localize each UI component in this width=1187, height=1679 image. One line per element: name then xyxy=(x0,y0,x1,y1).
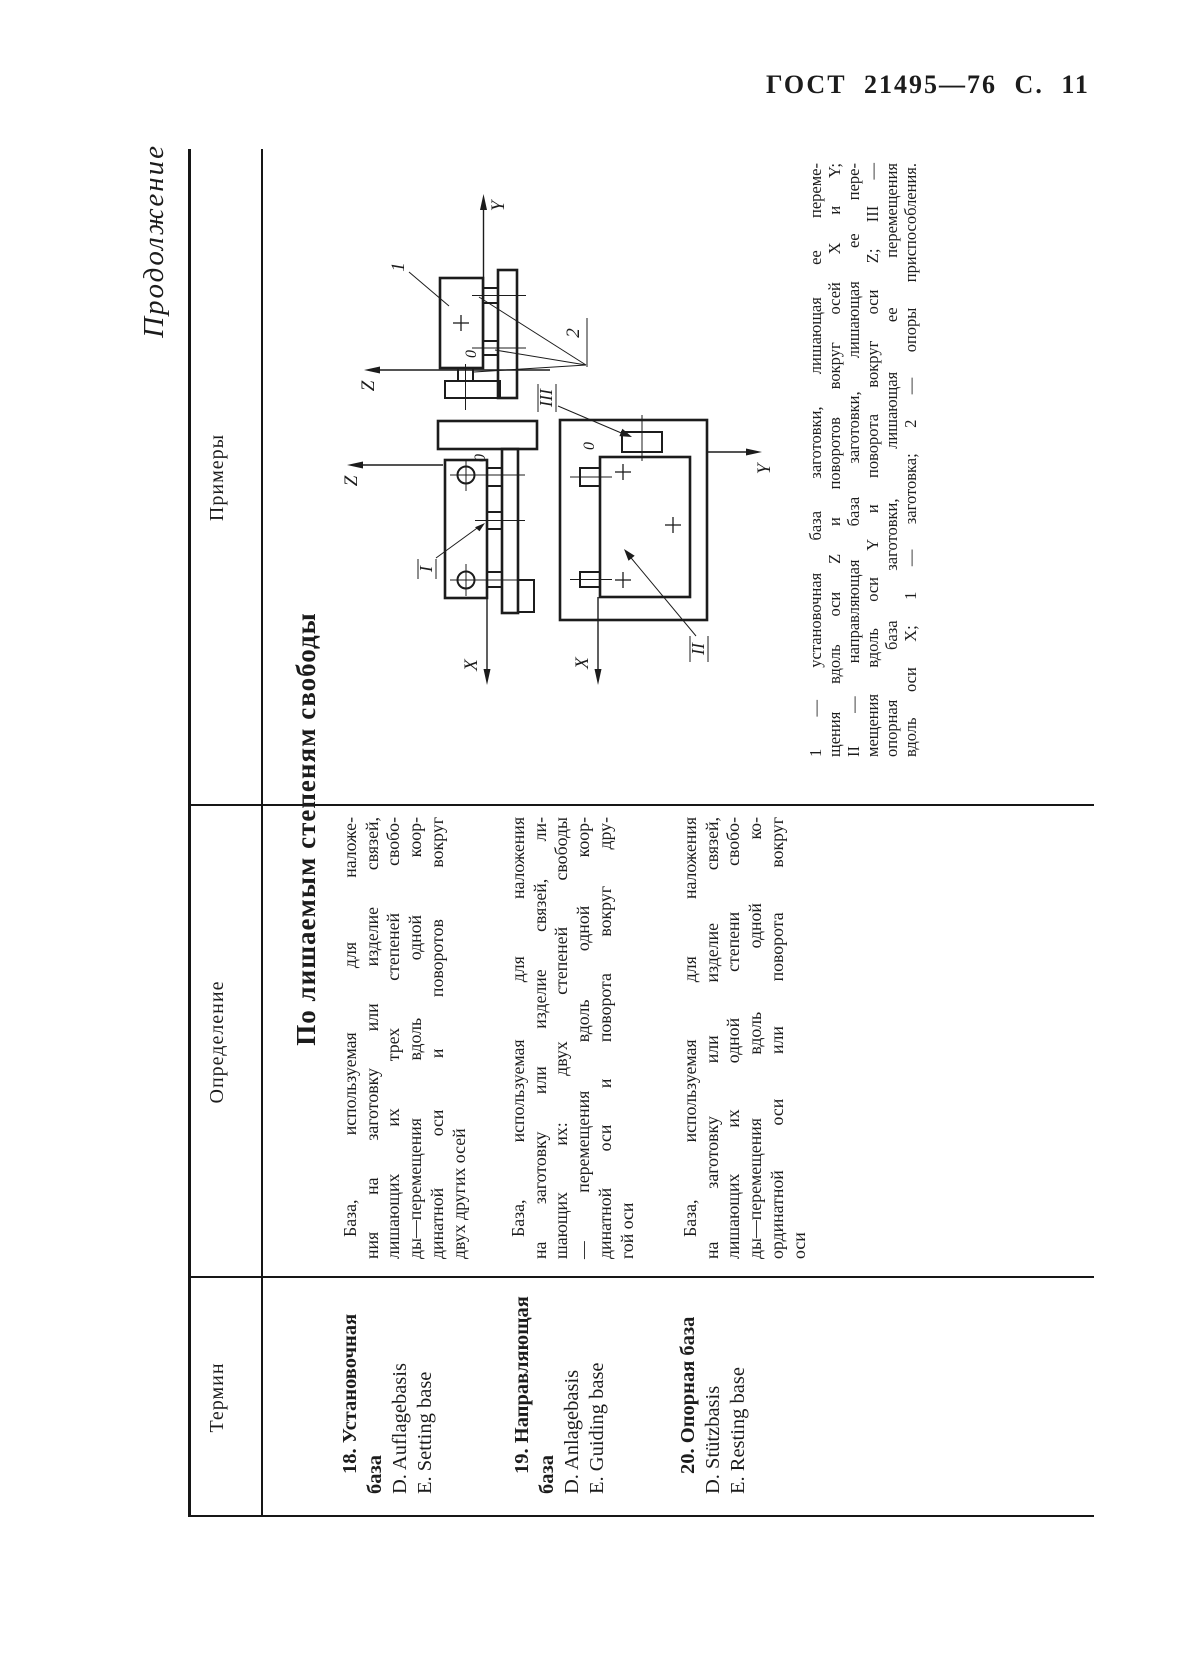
term-title: 18. Установочнаябаза xyxy=(338,1286,388,1494)
column-header-definition: Определение xyxy=(206,806,229,1278)
term-translations: D. AnlagebasisE. Guiding base xyxy=(560,1286,610,1494)
term-title: 20. Опорная база xyxy=(676,1286,701,1494)
table-left-rule xyxy=(188,1515,1094,1517)
axis-y-label: Y xyxy=(754,461,775,474)
axis-z-label: Z xyxy=(358,380,379,391)
leader-arrow xyxy=(624,549,635,561)
column-header-term: Термин xyxy=(206,1278,229,1517)
supports-number-label: 2 xyxy=(563,328,584,338)
support-block xyxy=(487,468,502,486)
figure-top-view: 0 X Y III II xyxy=(528,374,780,689)
definition-19: База, используемая для наложенияна загот… xyxy=(508,817,638,1259)
workpiece-outline xyxy=(600,457,690,597)
center-mark xyxy=(453,315,469,331)
base-II-label: II xyxy=(688,642,708,656)
column-header-examples: Примеры xyxy=(206,149,229,806)
term-entry-19: 19. Направляющаябаза D. AnlagebasisE. Gu… xyxy=(510,1286,610,1494)
scanned-standard-page: ГОСТ 21495—76 С. 11 Продолжение Термин О… xyxy=(0,0,1187,1679)
axis-z-label: Z xyxy=(341,475,362,486)
fixture-wall xyxy=(445,381,500,398)
axis-z-arrow xyxy=(364,367,380,374)
axis-y-arrow xyxy=(480,194,487,210)
axis-y-arrow xyxy=(746,449,762,456)
definition-18: База, используемая для наложе-ния на заг… xyxy=(340,817,470,1259)
origin-label: 0 xyxy=(463,350,480,358)
axis-x-label: X xyxy=(461,658,482,672)
continuation-note: Продолжение xyxy=(138,144,171,519)
rotated-table-area: Продолжение Термин Определение Примеры П… xyxy=(0,0,1187,1679)
table-top-rule xyxy=(188,149,191,1517)
fixture-base xyxy=(502,449,518,613)
figure-caption: 1 — установочная база заготовки, лишающа… xyxy=(806,163,920,757)
fixture-outline xyxy=(560,420,707,620)
support-point-mark xyxy=(615,464,681,588)
section-heading: По лишаемым степеням свободы xyxy=(291,199,322,1459)
axis-y-label: Y xyxy=(488,198,509,211)
fixture-wall xyxy=(438,421,537,449)
table-column-separator-2 xyxy=(188,804,1094,806)
origin-label: 0 xyxy=(581,442,598,450)
term-entry-20: 20. Опорная база D. StützbasisE. Resting… xyxy=(676,1286,751,1494)
table-column-separator-1 xyxy=(188,1276,1094,1278)
base-I-label: I xyxy=(416,565,436,573)
term-translations: D. StützbasisE. Resting base xyxy=(701,1286,751,1494)
term-translations: D. AuflagebasisE. Setting base xyxy=(388,1286,438,1494)
axis-x-arrow xyxy=(595,669,602,685)
origin-label: 0 xyxy=(472,454,489,462)
workpiece-number-label: 1 xyxy=(388,262,409,272)
axis-x-label: X xyxy=(572,656,593,670)
axis-z-arrow xyxy=(347,462,363,469)
leader-arrow xyxy=(475,523,485,531)
figure-side-view: Z Y 0 1 2 xyxy=(352,164,602,414)
axis-x-arrow xyxy=(484,669,491,685)
definition-20: База, используемая для наложенияна загот… xyxy=(680,817,810,1259)
figure-front-view: Z X 0 I xyxy=(335,409,547,689)
table-header-bottom-rule xyxy=(261,149,263,1517)
term-title: 19. Направляющаябаза xyxy=(510,1286,560,1494)
fixture-base xyxy=(498,270,517,398)
term-entry-18: 18. Установочнаябаза D. AuflagebasisE. S… xyxy=(338,1286,438,1494)
